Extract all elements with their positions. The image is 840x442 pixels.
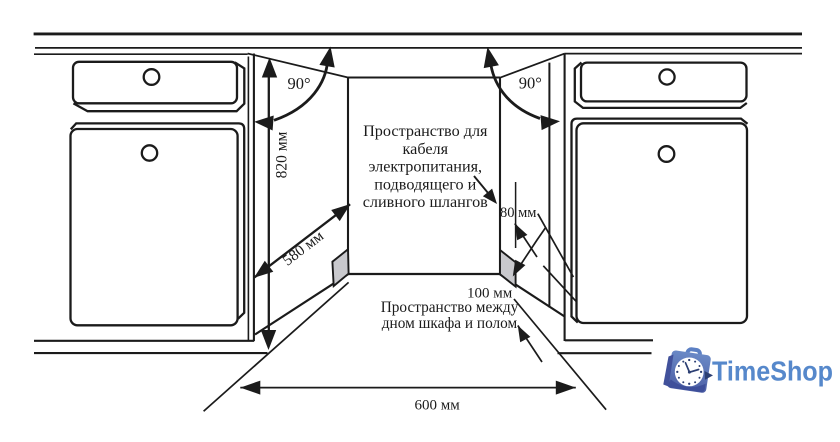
svg-text:Пространство между: Пространство между [381, 299, 519, 316]
svg-text:90°: 90° [519, 74, 542, 93]
svg-text:кабеля: кабеля [403, 140, 449, 158]
svg-text:электропитания,: электропитания, [368, 158, 482, 176]
svg-text:Пространство для: Пространство для [363, 122, 488, 140]
svg-text:дном шкафа и полом: дном шкафа и полом [382, 315, 518, 332]
svg-text:80 мм: 80 мм [500, 205, 536, 221]
svg-text:подводящего и: подводящего и [374, 175, 476, 193]
svg-text:820 мм: 820 мм [274, 131, 291, 178]
svg-text:TimeShop: TimeShop [712, 356, 833, 387]
svg-text:сливного шлангов: сливного шлангов [363, 193, 488, 211]
svg-text:600 мм: 600 мм [415, 398, 461, 414]
svg-text:580 мм: 580 мм [280, 227, 328, 269]
svg-text:90°: 90° [287, 74, 310, 93]
